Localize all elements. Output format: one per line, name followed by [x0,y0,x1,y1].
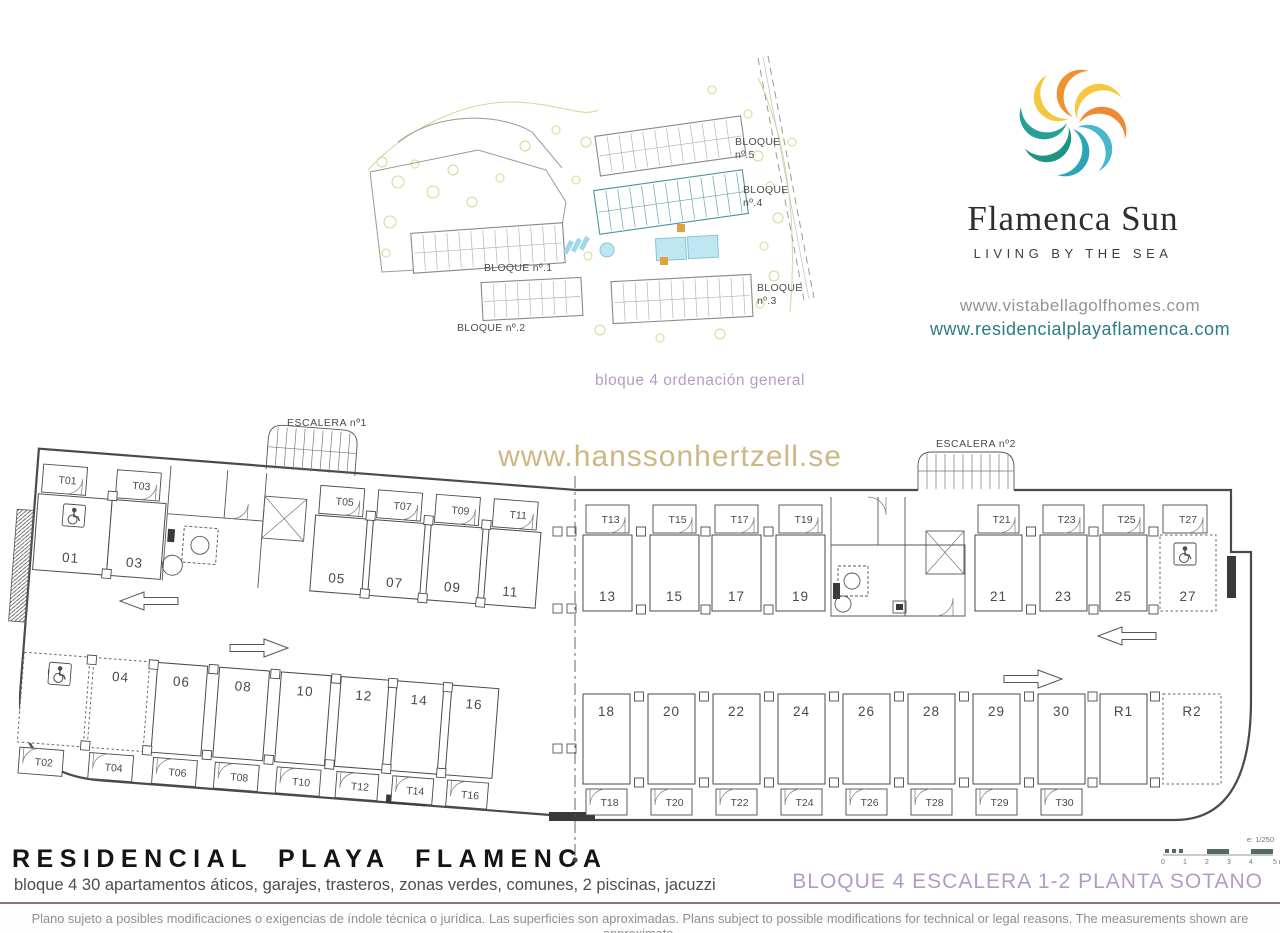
column-marker [142,746,152,756]
scale-tick: 5 m [1273,859,1280,866]
column-marker [331,674,341,684]
trastero-T19: T19 [779,505,822,533]
site-railway [758,56,814,300]
arrow-right-icon [230,639,288,657]
column-marker [360,589,370,599]
column-marker [436,768,446,778]
utility-rooms-right [831,497,965,616]
stall-number: 11 [502,584,519,600]
column-marker [895,692,904,701]
trastero-label: T17 [730,514,748,526]
column-marker [149,660,159,670]
escalera1-label: ESCALERA nº1 [287,417,367,429]
trastero-T30: T30 [1041,789,1082,815]
project-title: RESIDENCIAL PLAYA FLAMENCA [12,845,607,874]
column-marker [270,669,280,679]
url-vistabellagolfhomes[interactable]: www.vistabellagolfhomes.com [880,296,1280,316]
column-marker [960,692,969,701]
trastero-T05: T05 [319,485,365,516]
trastero-label: T27 [1179,514,1197,526]
column-marker [764,527,773,536]
site-road [398,118,562,168]
column-marker [1149,605,1158,614]
elevator-shaft-icon [262,496,307,541]
site-pool-area [563,224,719,265]
stall-number: 01 [62,550,80,566]
column-marker [87,655,97,665]
column-marker [700,778,709,787]
column-marker [1027,605,1036,614]
stall-number: 24 [793,704,810,719]
trastero-T29: T29 [976,789,1017,815]
row-top-right: 13T1315T1517T1719T1921T2123T2325T2527T27 [583,505,1216,614]
column-marker [1089,605,1098,614]
brand-name: Flamenca Sun [953,199,1193,239]
siteplan-caption: bloque 4 ordenación general [500,372,900,390]
column-marker [102,569,112,579]
trastero-label: T16 [461,789,480,802]
brand-urls: www.vistabellagolfhomes.com www.residenc… [880,296,1280,340]
stall-number: 28 [923,704,940,719]
trastero-T07: T07 [377,490,423,521]
stall-number: 07 [386,575,404,591]
stall-number: 10 [296,683,314,699]
stall-number: 13 [599,589,616,604]
trastero-label: T12 [350,781,369,794]
column-marker [1089,527,1098,536]
trastero-T28: T28 [911,789,952,815]
stall-number: R1 [1114,704,1133,719]
door-arc [231,503,248,520]
column-marker [1088,692,1097,701]
escalera2-label: ESCALERA nº2 [936,438,1016,450]
column-marker [264,755,274,765]
trastero-label: T29 [990,797,1008,809]
stall-number: 17 [728,589,745,604]
trastero-T13: T13 [586,505,629,533]
trastero-T25: T25 [1103,505,1144,533]
column-marker [1025,778,1034,787]
column-marker [764,605,773,614]
disclaimer-bar: Plano sujeto a posibles modificaciones o… [0,902,1280,933]
wheelchair-icon [1174,543,1196,565]
trastero-label: T25 [1117,514,1135,526]
trastero-T20: T20 [651,789,692,815]
column-marker [765,692,774,701]
column-marker [1027,527,1036,536]
wheelchair-icon [62,504,86,528]
stall-number: 09 [443,579,461,595]
trastero-label: T06 [168,767,187,780]
trastero-T12: T12 [335,771,379,800]
column-marker [1151,778,1160,787]
column-marker [637,527,646,536]
stall-number: 18 [598,704,615,719]
scale-tick: 4 [1249,859,1253,866]
escalera2-stairs [918,452,1014,490]
trastero-T14: T14 [391,776,434,805]
siteplan-block-4-highlighted [594,170,749,234]
column-markers-seam [553,527,576,753]
column-marker [325,760,335,770]
arrow-right-icon [1004,670,1062,688]
column-marker [80,741,90,751]
trastero-label: T10 [292,776,311,789]
trastero-label: T04 [104,762,123,775]
column-marker [382,764,392,774]
site-label-bloque3: BLOQUE [757,282,803,294]
trastero-T15: T15 [653,505,696,533]
section-line [572,476,577,863]
site-label-bloque4: BLOQUE [743,184,789,196]
trastero-T06: T06 [152,757,198,786]
column-marker [895,778,904,787]
column-marker [701,605,710,614]
stall-number: 22 [728,704,745,719]
trastero-label: T03 [132,480,151,493]
trastero-T22: T22 [716,789,757,815]
column-marker [1151,692,1160,701]
trastero-T10: T10 [275,767,321,796]
brand-logo: Flamenca Sun LIVING BY THE SEA [953,62,1193,261]
site-label-bloque5-num: nº.5 [735,149,755,161]
trastero-label: T07 [393,500,412,513]
column-marker [108,491,118,501]
trastero-label: T11 [509,509,527,522]
trastero-label: T15 [668,514,686,526]
trastero-T27: T27 [1163,505,1207,533]
stall-number: 21 [990,589,1007,604]
column-marker [1149,527,1158,536]
column-marker [960,778,969,787]
stall-number: 03 [125,555,143,571]
scale-tick: 1 [1183,859,1187,866]
trastero-label: T05 [335,496,354,509]
scale-tick: 2 [1205,859,1209,866]
trastero-label: T23 [1057,514,1075,526]
column-marker [366,511,376,521]
brochure-page: BLOQUE nº.5 BLOQUE nº.4 BLOQUE nº.3 BLOQ… [0,0,1280,933]
trastero-label: T26 [860,797,878,809]
stall-number: 19 [792,589,809,604]
trastero-label: T21 [992,514,1010,526]
site-label-bloque4-num: nº.4 [743,197,763,209]
column-marker [202,750,212,760]
scale-tick: 3 [1227,859,1231,866]
brand-tagline: LIVING BY THE SEA [953,246,1193,261]
trastero-label: T22 [730,797,748,809]
trastero-T01: T01 [42,464,88,495]
project-subtitle: bloque 4 30 apartamentos áticos, garajes… [14,876,716,895]
column-marker [388,678,398,688]
stall-number: 15 [666,589,683,604]
logo-petal [1024,74,1080,130]
trastero-label: T02 [34,756,53,769]
door-arc [868,497,953,616]
trastero-T16: T16 [446,780,489,809]
disclaimer-text: Plano sujeto a posibles modificaciones o… [0,911,1280,933]
stall-number: 27 [1179,589,1196,604]
stall-number: 26 [858,704,875,719]
wall-pillar [1227,556,1236,598]
trastero-T04: T04 [88,752,134,781]
stall-number: 05 [328,570,346,586]
trastero-T03: T03 [115,470,161,501]
sheet-label: BLOQUE 4 ESCALERA 1-2 PLANTA SOTANO [663,870,1263,894]
column-marker [482,520,492,530]
site-label-bloque5: BLOQUE [735,136,781,148]
stall-number: 14 [410,692,428,708]
siteplan-block-5 [595,116,746,176]
logo-petal [1066,116,1122,172]
stall-number: R2 [1182,704,1201,719]
url-residencialplayaflamenca[interactable]: www.residencialplayaflamenca.com [880,319,1280,340]
trastero-label: T28 [925,797,943,809]
trastero-label: T08 [230,771,249,784]
trastero-label: T19 [794,514,812,526]
scale-tick: 0 [1161,859,1165,866]
stall-number: 04 [112,669,130,685]
trastero-label: T09 [451,505,470,518]
column-marker [209,664,219,674]
column-marker [830,778,839,787]
site-jacuzzi [600,243,614,257]
arrow-left-icon [120,592,178,610]
arrow-left-icon [1098,627,1156,645]
trastero-label: T24 [795,797,813,809]
column-marker [635,692,644,701]
trastero-label: T13 [601,514,619,526]
scale-bar: e: 1/250 012345 m [1161,835,1280,866]
elevator-shaft-icon [926,531,964,574]
wheelchair-icon [48,662,72,686]
siteplan-block-3 [611,274,753,323]
site-label-bloque3-num: nº.3 [757,295,777,307]
site-label-bloque2: BLOQUE nº.2 [457,322,525,334]
stall-number: 30 [1053,704,1070,719]
trastero-label: T14 [406,785,425,798]
trastero-T09: T09 [434,494,480,525]
trastero-label: T30 [1055,797,1073,809]
scale-label: e: 1/250 [1247,835,1274,844]
stall-number: 25 [1115,589,1132,604]
logo-petal [1024,116,1080,172]
logo-petal [1066,74,1122,130]
column-marker [765,778,774,787]
column-marker [637,605,646,614]
floor-plan: ESCALERA nº1 ESCALERA nº2 [0,400,1280,870]
trastero-T08: T08 [213,762,259,791]
row-top-left: 01T0103T0305T0507T0709T0911T11 [32,464,543,611]
trastero-T24: T24 [781,789,822,815]
stall-number: 16 [465,696,483,712]
site-plan: BLOQUE nº.5 BLOQUE nº.4 BLOQUE nº.3 BLOQ… [360,50,820,360]
stall-number: 06 [172,674,190,690]
column-marker [1025,692,1034,701]
column-marker [476,598,486,608]
trastero-T23: T23 [1043,505,1084,533]
trastero-T17: T17 [715,505,758,533]
column-marker [830,692,839,701]
row-bottom-right: 18T1820T2022T2224T2426T2628T2829T2930T30… [583,692,1221,815]
utility-rooms-left [161,466,308,591]
trastero-T26: T26 [846,789,887,815]
siteplan-block-2 [481,277,583,320]
trastero-T18: T18 [586,789,627,815]
trastero-label: T01 [58,474,77,487]
row-bottom-left: 02T0204T0406T0608T0810T1012T1214T1416T16 [15,650,499,809]
stall-number: 20 [663,704,680,719]
column-marker [1088,778,1097,787]
trastero-T02: T02 [18,747,64,776]
column-marker [635,778,644,787]
flamenca-sun-logo-icon [1012,62,1134,184]
trastero-label: T18 [600,797,618,809]
stall-number: 23 [1055,589,1072,604]
trastero-T11: T11 [492,499,538,530]
stall-number: 29 [988,704,1005,719]
column-marker [701,527,710,536]
site-label-bloque1: BLOQUE nº.1 [484,262,552,274]
column-marker [700,692,709,701]
trastero-label: T20 [665,797,683,809]
trastero-T21: T21 [978,505,1019,533]
column-marker [443,682,453,692]
column-marker [418,593,428,603]
stall-number: 12 [355,688,373,704]
stall-number: 08 [234,678,252,694]
column-marker [424,515,434,525]
